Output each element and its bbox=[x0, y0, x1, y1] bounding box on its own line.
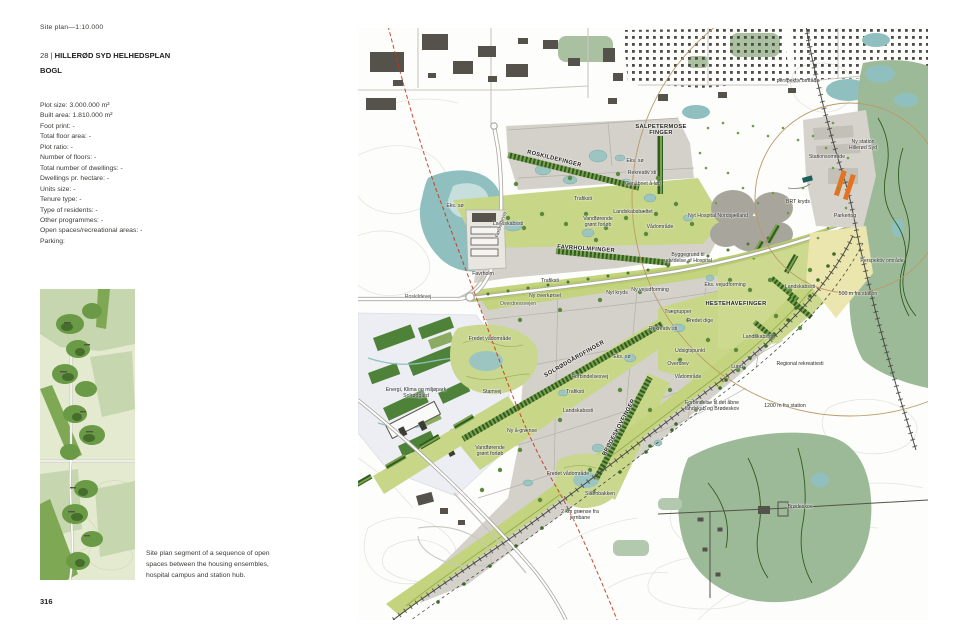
facts-list: Plot size: 3.000.000 m²Built area: 1.810… bbox=[40, 101, 142, 247]
fact-line: Dwellings pr. hectare: - bbox=[40, 174, 142, 184]
page-number: 316 bbox=[40, 597, 53, 606]
fact-line: Plot ratio: - bbox=[40, 143, 142, 153]
book-page: Site plan—1:10.000 28 | HILLERØD SYD HEL… bbox=[0, 0, 960, 637]
fact-line: Parking: bbox=[40, 237, 142, 247]
fact-line: Foot print: - bbox=[40, 122, 142, 132]
fact-line: Units size: - bbox=[40, 185, 142, 195]
project-title: 28 | HILLERØD SYD HELHEDSPLAN bbox=[40, 51, 170, 60]
fact-line: Total floor area: - bbox=[40, 132, 142, 142]
project-number: 28 | bbox=[40, 51, 55, 60]
fact-line: Number of floors: - bbox=[40, 153, 142, 163]
thumbnail-map-svg bbox=[40, 289, 135, 580]
caption: Site plan segment of a sequence of open … bbox=[146, 548, 278, 581]
fact-line: Other programmes: - bbox=[40, 216, 142, 226]
thumbnail-map bbox=[40, 289, 135, 580]
site-plan-svg bbox=[358, 28, 928, 620]
fact-line: Tenure type: - bbox=[40, 195, 142, 205]
scale-note: Site plan—1:10.000 bbox=[40, 24, 103, 31]
site-plan-map: ROSKILDEFINGERSALPETERMOSE FINGERFAVRHOL… bbox=[358, 28, 928, 620]
fact-line: Type of residents: - bbox=[40, 206, 142, 216]
architect-name: BOGL bbox=[40, 66, 62, 75]
fact-line: Built area: 1.810.000 m² bbox=[40, 111, 142, 121]
fact-line: Plot size: 3.000.000 m² bbox=[40, 101, 142, 111]
favrholm-buildings bbox=[466, 210, 506, 270]
project-title-text: HILLERØD SYD HELHEDSPLAN bbox=[55, 51, 171, 60]
fact-line: Open spaces/recreational areas: - bbox=[40, 226, 142, 236]
fact-line: Total number of dwellings: - bbox=[40, 164, 142, 174]
